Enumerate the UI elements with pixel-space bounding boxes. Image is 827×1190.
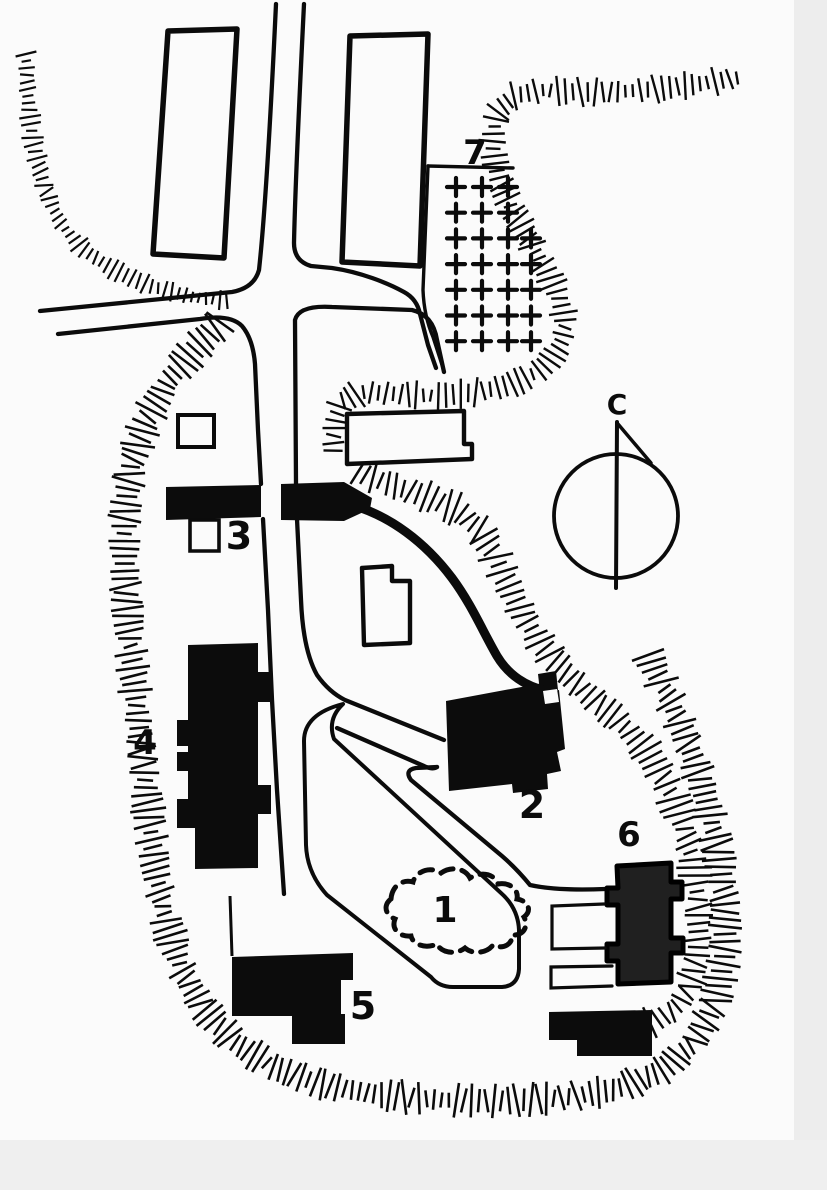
- slope-tick: [694, 806, 722, 811]
- field-plots: [153, 29, 428, 266]
- slope-tick: [86, 249, 93, 260]
- slope-tick: [358, 1082, 361, 1101]
- slope-tick: [252, 1046, 269, 1072]
- slope-tick: [662, 1051, 684, 1070]
- grave-cross-icon: [499, 204, 517, 222]
- slope-tick: [114, 592, 139, 595]
- slope-tick: [453, 384, 455, 405]
- slope-tick: [689, 931, 709, 933]
- grave-cross-icon: [447, 332, 465, 350]
- slope-tick: [111, 606, 144, 611]
- slope-tick: [672, 817, 693, 825]
- slope-tick: [546, 651, 564, 671]
- slope-tick: [619, 721, 631, 733]
- label-compass: C: [607, 388, 628, 421]
- slope-tick: [22, 95, 33, 97]
- slope-tick: [305, 1072, 311, 1088]
- building-south-east: [549, 1010, 652, 1056]
- slope-tick: [399, 384, 403, 404]
- slope-tick: [134, 817, 165, 818]
- grave-cross-icon: [447, 178, 465, 196]
- pen-lower: [551, 966, 612, 988]
- slope-tick: [342, 1080, 347, 1098]
- slope-tick: [134, 821, 166, 829]
- slope-tick: [121, 466, 140, 468]
- slope-tick: [495, 376, 501, 399]
- slope-tick: [122, 659, 143, 664]
- grave-cross-icon: [473, 332, 491, 350]
- slope-tick: [582, 1086, 586, 1102]
- slope-tick: [598, 699, 616, 722]
- site-plan-page: 7 C 3 4 2 6 1 5: [0, 0, 827, 1190]
- slope-tick: [705, 827, 721, 833]
- slope-tick: [692, 74, 694, 95]
- slope-tick: [661, 76, 665, 101]
- slope-tick: [490, 382, 492, 397]
- building-3-east-wing: [281, 482, 372, 521]
- slope-tick: [325, 419, 346, 423]
- slope-tick: [320, 1069, 326, 1101]
- slope-tick: [386, 471, 391, 495]
- slope-tick: [136, 273, 141, 289]
- slope-tick: [110, 571, 139, 572]
- slope-tick: [36, 177, 49, 181]
- slope-tick: [710, 874, 732, 876]
- slope-tick: [681, 762, 711, 768]
- slope-tick: [22, 102, 35, 103]
- slope-tick: [492, 1084, 495, 1118]
- slope-tick: [277, 1058, 283, 1082]
- slope-tick: [454, 1083, 459, 1118]
- slope-tick: [140, 274, 149, 293]
- slope-tick: [619, 1078, 622, 1096]
- slope-tick: [486, 148, 501, 149]
- slope-tick: [684, 954, 710, 956]
- slope-tick: [172, 962, 187, 966]
- slope-tick: [143, 845, 162, 850]
- slope-tick: [577, 77, 583, 107]
- grave-cross-icon: [447, 204, 465, 222]
- slope-tick: [19, 67, 35, 69]
- label-feature-3: 3: [226, 514, 252, 558]
- slope-tick: [132, 799, 164, 807]
- slope-tick: [226, 293, 228, 309]
- slope-tick: [52, 214, 63, 222]
- slope-tick: [702, 977, 738, 981]
- slope-tick: [726, 69, 733, 89]
- slope-tick: [688, 899, 708, 901]
- open-pens: [551, 904, 612, 988]
- slope-tick: [705, 985, 732, 987]
- slope-tick: [688, 947, 709, 948]
- slope-tick: [507, 1087, 510, 1115]
- slope-tick: [489, 170, 505, 172]
- slope-tick: [128, 270, 137, 287]
- slope-tick: [549, 84, 552, 98]
- slope-tick: [553, 332, 574, 337]
- slope-tick: [551, 298, 568, 299]
- slope-tick: [565, 78, 567, 104]
- slope-tick: [699, 76, 701, 91]
- slope-tick: [461, 1088, 467, 1112]
- slope-tick: [701, 990, 734, 997]
- slope-tick: [142, 866, 169, 874]
- building-4: [177, 643, 272, 869]
- slope-tick: [423, 389, 424, 403]
- slope-tick: [93, 251, 99, 264]
- slope-tick: [122, 268, 129, 282]
- slope-tick: [529, 1082, 533, 1117]
- slope-tick: [687, 922, 710, 925]
- slope-tick: [110, 548, 140, 549]
- slope-tick: [594, 78, 597, 107]
- slope-tick: [262, 1057, 272, 1068]
- slope-tick: [418, 1082, 419, 1114]
- slope-tick: [704, 822, 720, 824]
- grave-cross-icon: [447, 307, 465, 325]
- slope-tick: [110, 511, 141, 512]
- slope-tick: [425, 1090, 427, 1107]
- slope-tick: [435, 494, 445, 511]
- slope-tick: [668, 711, 686, 722]
- slope-tick: [114, 621, 144, 626]
- slope-tick: [62, 227, 70, 232]
- slope-tick: [568, 1088, 569, 1105]
- slope-tick: [478, 553, 513, 560]
- slope-tick: [116, 496, 137, 497]
- slope-tick: [24, 142, 43, 147]
- grave-cross-icon: [522, 307, 540, 325]
- grave-cross-icon: [522, 332, 540, 350]
- slope-tick: [471, 1084, 472, 1118]
- slope-tick: [144, 874, 171, 880]
- slope-tick: [325, 1074, 335, 1099]
- slope-tick: [129, 433, 151, 443]
- slope-tick: [702, 858, 737, 861]
- slope-tick: [524, 625, 538, 632]
- slope-tick: [554, 319, 576, 321]
- slope-tick: [157, 911, 172, 916]
- label-feature-5: 5: [350, 984, 376, 1028]
- slope-tick: [21, 137, 43, 138]
- slope-tick: [683, 754, 703, 762]
- slope-tick: [505, 604, 535, 612]
- slope-tick: [571, 1081, 582, 1111]
- slope-tick: [135, 836, 169, 844]
- building-3-annex: [190, 520, 219, 551]
- slope-tick: [446, 383, 447, 408]
- slope-tick: [688, 778, 712, 780]
- slope-tick: [363, 385, 365, 399]
- slope-tick: [638, 78, 642, 102]
- slope-tick: [110, 502, 142, 507]
- slope-tick: [408, 1088, 414, 1108]
- slope-tick: [537, 267, 557, 275]
- slope-tick: [246, 1040, 263, 1069]
- slope-tick: [495, 574, 515, 584]
- grave-cross-icon: [473, 255, 491, 273]
- slope-tick: [520, 86, 521, 102]
- slope-tick: [126, 712, 149, 714]
- slope-tick: [714, 934, 737, 935]
- slope-tick: [41, 196, 58, 200]
- slope-tick: [666, 706, 683, 712]
- slope-tick: [609, 82, 613, 102]
- slope-tick: [710, 902, 740, 905]
- slope-tick: [553, 1090, 556, 1107]
- slope-tick: [115, 628, 144, 634]
- slope-tick: [16, 52, 37, 57]
- slope-tick: [34, 185, 53, 186]
- slope-tick: [402, 1079, 407, 1115]
- slope-tick: [569, 672, 584, 695]
- slope-tick: [706, 76, 709, 89]
- slope-tick: [709, 941, 740, 942]
- building-6: [607, 863, 683, 984]
- slope-tick: [491, 562, 507, 568]
- slope-tick: [652, 1063, 659, 1085]
- slope-tick: [326, 434, 341, 438]
- slope-tick: [533, 79, 539, 104]
- slope-tick: [334, 1073, 341, 1101]
- slope-tick: [685, 938, 711, 941]
- slope-tick: [131, 794, 162, 797]
- slope-tick: [481, 382, 486, 401]
- slope-tick: [360, 466, 371, 484]
- slope-tick: [527, 84, 530, 102]
- site-plan-map: 7 C 3 4 2 6 1 5: [0, 0, 827, 1190]
- grave-cross-icon: [473, 204, 491, 222]
- slope-tick: [721, 72, 724, 89]
- slope-tick: [117, 533, 132, 534]
- slope-tick: [393, 387, 395, 402]
- slope-tick: [605, 1080, 607, 1103]
- slope-tick: [502, 376, 508, 397]
- slope-tick: [196, 328, 214, 350]
- grave-cross-icon: [499, 307, 517, 325]
- slope-tick: [500, 1091, 503, 1112]
- slope-tick: [111, 600, 143, 603]
- slope-tick: [158, 282, 159, 294]
- slope-tick: [588, 82, 589, 102]
- outlined-building-middle: [362, 566, 410, 645]
- slope-tick: [535, 1084, 542, 1114]
- slope-tick: [682, 747, 700, 754]
- grave-cross-icon: [447, 255, 465, 273]
- slope-tick: [323, 442, 345, 445]
- slope-tick: [19, 115, 41, 118]
- slope-tick: [20, 80, 35, 83]
- slope-tick: [114, 473, 146, 475]
- slope-tick: [572, 83, 573, 100]
- compass-north-indicator: [554, 422, 678, 588]
- slope-tick: [693, 791, 716, 796]
- slope-tick: [677, 973, 707, 985]
- slope-tick: [558, 1086, 565, 1111]
- grave-cross-icon: [473, 307, 491, 325]
- slope-tick: [690, 890, 705, 892]
- slope-tick: [682, 970, 706, 973]
- slope-tick: [112, 578, 139, 579]
- slope-tick: [621, 1071, 633, 1099]
- slope-tick: [134, 787, 158, 788]
- slope-tick: [617, 81, 618, 102]
- slope-tick: [120, 672, 147, 679]
- label-feature-1: 1: [432, 890, 457, 931]
- building-5: [232, 953, 353, 1044]
- slope-tick: [484, 1089, 488, 1112]
- slope-tick: [373, 1085, 376, 1104]
- slope-tick: [542, 84, 543, 96]
- slope-tick: [713, 886, 733, 893]
- slope-tick: [504, 204, 517, 208]
- slope-tick: [152, 895, 170, 902]
- slope-tick: [556, 76, 559, 106]
- slope-tick: [130, 808, 166, 813]
- slope-tick: [326, 402, 352, 411]
- lane-southeast-line: [408, 767, 605, 890]
- slope-tick: [115, 650, 149, 656]
- slope-tick: [684, 958, 707, 968]
- slope-tick: [28, 151, 43, 152]
- grave-cross-icon: [473, 229, 491, 247]
- slope-tick: [692, 814, 727, 818]
- slope-tick: [151, 882, 166, 886]
- slope-tick: [20, 74, 34, 75]
- field-plot-upper-left: [153, 29, 237, 258]
- grave-cross-icon: [447, 229, 465, 247]
- slope-tick: [664, 788, 677, 796]
- slope-tick: [394, 473, 398, 500]
- slope-tick: [533, 256, 546, 261]
- slope-tick: [122, 681, 146, 685]
- slope-tick: [589, 1081, 593, 1106]
- grave-cross-icon: [473, 281, 491, 299]
- slope-tick: [21, 122, 41, 126]
- grave-cross-icon: [473, 178, 491, 196]
- slope-tick: [646, 1066, 650, 1088]
- slope-tick: [648, 671, 667, 680]
- slope-tick: [684, 882, 709, 886]
- slope-tick: [40, 187, 53, 196]
- slope-tick: [167, 954, 188, 960]
- slope-tick: [116, 487, 140, 492]
- slope-tick: [384, 382, 389, 405]
- scan-margin-right: [794, 0, 827, 1190]
- slope-tick: [663, 810, 695, 818]
- slope-tick: [503, 94, 513, 108]
- slope-tick: [45, 202, 59, 207]
- slope-tick: [658, 684, 670, 693]
- slope-tick: [702, 852, 734, 853]
- slope-tick: [162, 945, 188, 955]
- slope-tick: [128, 705, 145, 706]
- slope-tick: [129, 772, 159, 773]
- slope-tick: [394, 1082, 399, 1110]
- slope-tick: [513, 1084, 520, 1117]
- slope-tick: [22, 60, 31, 62]
- slope-tick: [407, 382, 409, 408]
- slope-tick: [559, 325, 572, 330]
- pen-upper: [552, 904, 605, 949]
- slope-tick: [140, 858, 169, 866]
- grave-cross-icon: [499, 332, 517, 350]
- slope-tick: [112, 476, 145, 486]
- slope-tick: [33, 168, 49, 176]
- slope-tick: [602, 82, 605, 103]
- slope-tick: [150, 279, 154, 294]
- slope-tick: [500, 590, 524, 597]
- label-feature-6: 6: [617, 815, 641, 855]
- compass-needle-line: [616, 422, 617, 588]
- label-feature-4: 4: [133, 723, 157, 763]
- slope-tick: [144, 831, 159, 833]
- slope-tick: [604, 704, 622, 728]
- slope-tick: [584, 690, 605, 709]
- slope-tick: [709, 946, 742, 953]
- slope-tick: [433, 1089, 435, 1110]
- slope-tick: [705, 867, 737, 868]
- slope-tick: [124, 644, 138, 649]
- slope-tick: [651, 75, 659, 104]
- slope-tick: [125, 720, 152, 721]
- slope-tick: [684, 850, 698, 855]
- slope-tick: [511, 612, 535, 618]
- slope-tick: [377, 472, 384, 488]
- road-vertical-east-line: [294, 4, 436, 368]
- slope-tick: [484, 544, 500, 556]
- slope-tick: [65, 231, 74, 237]
- slope-tick: [103, 258, 111, 273]
- slope-tick: [430, 390, 432, 402]
- building-5-fence-line: [230, 896, 232, 956]
- grave-cross-icon: [499, 281, 517, 299]
- slope-tick: [414, 483, 422, 504]
- scan-margin-bottom: [0, 1140, 827, 1190]
- slope-tick: [387, 1080, 391, 1112]
- slope-tick: [625, 85, 626, 98]
- slope-tick: [440, 1093, 442, 1108]
- building-2-notch: [543, 689, 559, 704]
- slope-tick: [330, 411, 344, 416]
- slope-tick: [677, 832, 696, 841]
- cemetery-cross-grid: [447, 178, 540, 350]
- slope-tick: [632, 84, 633, 97]
- slope-tick: [714, 956, 735, 957]
- slope-tick: [524, 630, 547, 640]
- slope-tick: [689, 784, 717, 789]
- outlined-building-north: [347, 411, 472, 464]
- slope-tick: [685, 904, 712, 912]
- slope-tick: [709, 918, 741, 921]
- slope-tick: [201, 325, 220, 342]
- label-feature-7: 7: [463, 133, 487, 173]
- slope-tick: [139, 853, 169, 857]
- slope-tick: [669, 76, 671, 99]
- lane-to-building2-lower-line: [337, 728, 437, 768]
- slope-tick: [549, 311, 578, 316]
- slope-tick: [711, 67, 718, 96]
- slope-tick: [108, 515, 141, 522]
- slope-tick: [55, 219, 67, 229]
- slope-tick: [156, 940, 189, 946]
- slope-tick: [470, 528, 498, 544]
- hachure-band-northwest: [16, 52, 228, 311]
- slope-tick: [696, 799, 718, 803]
- field-plot-upper-right: [342, 34, 428, 266]
- slope-tick: [116, 666, 150, 671]
- small-outbuilding-nw: [178, 415, 214, 447]
